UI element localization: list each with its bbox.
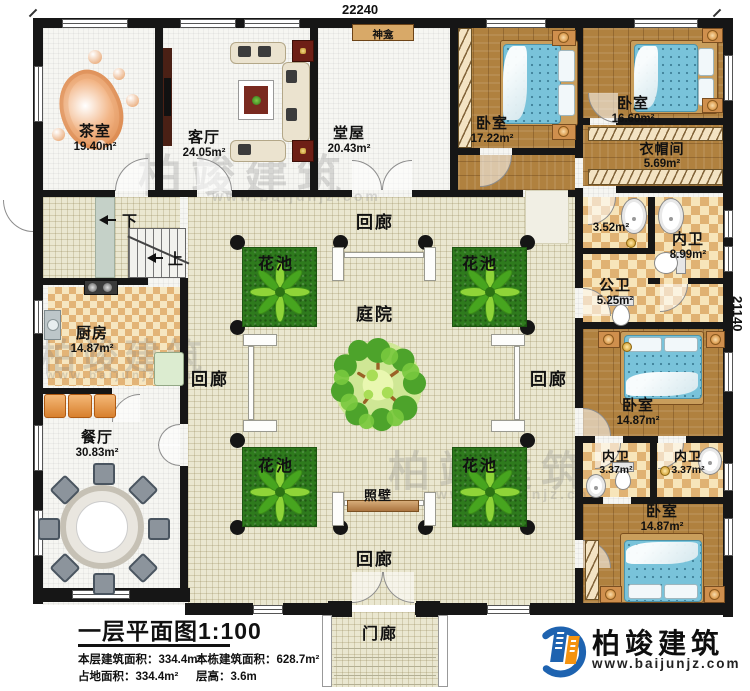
bench (491, 420, 525, 432)
stair-up-label: 上 (168, 248, 183, 269)
pillow (628, 337, 662, 352)
wall (648, 278, 660, 284)
room-name: 内卫 (655, 232, 721, 249)
pillow (664, 584, 698, 599)
room-label-tea: 茶室 19.40m² (52, 124, 138, 154)
window (724, 352, 733, 392)
shrine-label: 神龛 (373, 29, 394, 41)
stat-land-area: 占地面积：334.4m² (78, 668, 178, 684)
room-label-dining: 餐厅 30.83m² (55, 430, 139, 460)
room-label-bedroom2: 卧室 16.60m² (588, 96, 678, 126)
courtyard-label: 庭院 (356, 300, 394, 325)
bench (248, 346, 254, 420)
room-label-kitchen: 厨房 14.87m² (52, 326, 132, 356)
column (230, 433, 245, 448)
bench (424, 247, 436, 281)
window (244, 19, 300, 28)
wall (583, 436, 595, 443)
corridor-label-bottom: 回廊 (356, 545, 394, 570)
cushion (286, 70, 297, 83)
wall (575, 188, 583, 288)
wall (650, 443, 657, 500)
bench (332, 492, 344, 526)
window (34, 300, 43, 334)
stool (94, 394, 116, 418)
room-label-bedroom4: 卧室 14.87m² (620, 504, 704, 534)
decor-stone (126, 94, 139, 107)
plant-pot-icon (252, 96, 261, 105)
wall (575, 436, 583, 540)
burner-icon (103, 283, 112, 292)
porch-label: 门廊 (362, 620, 398, 644)
pillow (558, 84, 575, 116)
window (724, 246, 733, 272)
corridor-label-top: 回廊 (356, 208, 394, 233)
porch-rail (438, 615, 448, 687)
bench (514, 346, 520, 420)
screen-wall-label: 照壁 (364, 485, 392, 504)
lamp-icon (710, 334, 721, 345)
room-label-ensuite-left: 内卫 3.37m² (588, 450, 644, 476)
room-area: 30.83m² (55, 447, 139, 460)
room-area: 16.60m² (588, 113, 678, 126)
dimension-tick (713, 9, 721, 17)
window (634, 19, 698, 28)
pillow (558, 50, 575, 82)
room-label-bedroom1: 卧室 17.22m² (452, 116, 532, 146)
stair-down-label: 下 (122, 210, 137, 231)
sink (586, 474, 606, 498)
wall (583, 322, 733, 329)
dimension-tick (29, 9, 37, 17)
lamp-icon (709, 589, 720, 600)
wall (232, 190, 352, 197)
closet-hatch (585, 540, 599, 600)
wall (148, 190, 197, 197)
walkway-strip (95, 197, 115, 278)
flower-bed-label: 花池 (462, 250, 498, 274)
corridor-label-right: 回廊 (530, 365, 568, 390)
room-label-bath-small: 3.52m² (585, 222, 637, 235)
window (724, 463, 733, 491)
decor-stone (88, 50, 102, 64)
room-name: 堂屋 (308, 126, 390, 143)
window (724, 210, 733, 238)
wardrobe-hatch (588, 127, 723, 141)
room-name: 餐厅 (55, 430, 139, 447)
wardrobe-hatch (588, 169, 723, 185)
room-name: 茶室 (52, 124, 138, 141)
wall (180, 466, 188, 602)
wall (412, 190, 523, 197)
room-label-ensuite-right: 内卫 3.37m² (660, 450, 716, 476)
room-area: 3.37m² (588, 465, 644, 477)
stool (44, 394, 66, 418)
room-name: 衣帽间 (614, 142, 710, 158)
company-logo-icon (534, 620, 590, 680)
floor-plan-canvas: 22240 21140 柏竣建筑 www.baijunjz.com 柏竣建筑 w… (0, 0, 750, 691)
pillow (664, 337, 698, 352)
fridge (154, 352, 184, 386)
dimension-top: 22240 (342, 2, 378, 17)
room-name: 内卫 (588, 450, 644, 465)
porch-rail (322, 615, 332, 687)
stair-down-arrow (102, 219, 116, 221)
room-label-cloakroom: 衣帽间 5.69m² (614, 142, 710, 171)
window (486, 19, 546, 28)
room-area: 5.25m² (585, 295, 645, 308)
window (34, 66, 43, 122)
bench (344, 252, 424, 258)
tv-icon (164, 78, 171, 116)
wall (568, 190, 583, 197)
bench (243, 420, 277, 432)
room-name: 卧室 (452, 116, 532, 133)
door-arc (3, 200, 33, 232)
chair (148, 518, 170, 540)
room-name: 卧室 (598, 398, 678, 415)
window (62, 19, 128, 28)
lamp-icon (558, 126, 569, 137)
room-name: 卧室 (588, 96, 678, 113)
shrine-box: 神龛 (352, 24, 414, 41)
window (487, 605, 530, 614)
hall-floor (458, 155, 575, 190)
room-area: 24.05m² (168, 147, 240, 160)
wall (575, 318, 583, 408)
wall (512, 148, 583, 155)
room-area: 14.87m² (620, 521, 704, 534)
lamp-icon (603, 334, 614, 345)
wall (623, 436, 658, 443)
faucet-icon (626, 238, 636, 248)
stat-floor-height: 层高：3.6m (196, 668, 257, 684)
wall (616, 186, 723, 193)
wall (530, 603, 733, 615)
room-area: 8.99m² (655, 249, 721, 262)
room-area: 3.52m² (585, 222, 637, 235)
lamp-icon (558, 32, 569, 43)
window (724, 55, 733, 101)
lamp-icon (707, 30, 718, 41)
chair (38, 518, 60, 540)
flower-bed-label: 花池 (258, 452, 294, 476)
company-website: www.baijunjz.com (592, 656, 741, 671)
room-area: 19.40m² (52, 141, 138, 154)
flower-bed-label: 花池 (258, 250, 294, 274)
wall (575, 568, 583, 612)
porch-steps (334, 648, 436, 686)
wall (450, 148, 480, 155)
bench (491, 334, 525, 346)
wall (180, 278, 188, 424)
bench (243, 334, 277, 346)
bed-sheet (626, 542, 698, 564)
room-name: 公卫 (585, 278, 645, 295)
room-label-living: 客厅 24.05m² (168, 130, 240, 160)
room-area: 5.69m² (614, 158, 710, 171)
room-label-hall: 堂屋 20.43m² (308, 126, 390, 156)
sink (658, 198, 684, 234)
title-underline (78, 644, 230, 647)
bench (332, 247, 344, 281)
burner-icon (88, 283, 97, 292)
decor-stone (113, 68, 125, 80)
bed-sheet (626, 372, 698, 396)
pillow (698, 48, 714, 76)
room-label-bedroom3: 卧室 14.87m² (598, 398, 678, 428)
wall (583, 248, 655, 254)
courtyard-tree-icon (330, 337, 426, 433)
lamp-icon (707, 100, 718, 111)
room-name: 客厅 (168, 130, 240, 147)
cushion (286, 108, 297, 121)
corridor-label-left: 回廊 (191, 365, 229, 390)
wall (33, 190, 115, 197)
window (724, 518, 733, 556)
room-area: 3.37m² (660, 465, 716, 477)
wall (583, 497, 603, 504)
chair (93, 463, 115, 485)
cushion (238, 46, 251, 57)
room-label-public-bath: 公卫 5.25m² (585, 278, 645, 308)
wall (155, 18, 163, 197)
wall (450, 18, 458, 197)
lamp-icon (605, 589, 616, 600)
stair-up-arrow (150, 257, 163, 259)
side-table (292, 40, 314, 62)
pillow (628, 584, 662, 599)
cushion (258, 46, 271, 57)
wall (648, 197, 655, 254)
flower-bed-label: 花池 (462, 452, 498, 476)
room-name: 厨房 (52, 326, 132, 343)
room-name: 卧室 (620, 504, 704, 521)
stat-building-area: 本栋建筑面积：628.7m² (196, 651, 319, 667)
wall (688, 278, 733, 284)
column (520, 433, 535, 448)
window (34, 425, 43, 471)
room-area: 20.43m² (308, 143, 390, 156)
room-area: 14.87m² (52, 343, 132, 356)
chair (93, 573, 115, 595)
plan-title: 一层平面图1:100 (78, 612, 262, 646)
room-label-ensuite-main: 内卫 8.99m² (655, 232, 721, 262)
wall (686, 436, 733, 443)
porch-pier (416, 601, 440, 617)
bench (424, 492, 436, 526)
room-area: 14.87m² (598, 415, 678, 428)
room-area: 17.22m² (452, 133, 532, 146)
faucet-icon (622, 342, 632, 352)
bed-sheet (503, 46, 527, 120)
stat-floor-area: 本层建筑面积：334.4m² (78, 651, 201, 667)
room-name: 内卫 (660, 450, 716, 465)
stool (68, 394, 92, 418)
dining-table-top (76, 501, 128, 553)
window (180, 19, 236, 28)
